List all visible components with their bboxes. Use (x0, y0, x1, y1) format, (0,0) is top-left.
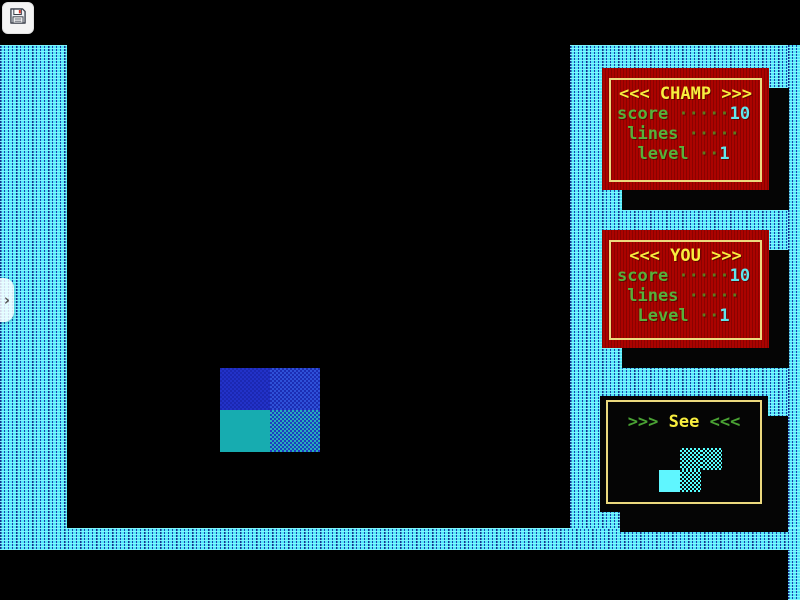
champ-score-label: score (617, 104, 678, 124)
you-level-dots: ·· (699, 306, 719, 326)
you-panel-border: <<< YOU >>> score ·····10 lines ····· Le… (609, 240, 762, 340)
playfield-block (220, 368, 270, 410)
next-piece-block (680, 448, 701, 470)
floppy-disk-icon (8, 6, 28, 30)
next-piece-panel-title: >>> See <<< (608, 412, 760, 432)
you-panel-title: <<< YOU >>> (611, 246, 760, 266)
see-title-right-arrows: <<< (699, 412, 740, 432)
chevron-right-icon: › (4, 293, 10, 308)
you-panel: <<< YOU >>> score ·····10 lines ····· Le… (602, 230, 769, 348)
champ-lines-label: lines (617, 124, 689, 144)
champ-score-row: score ·····10 (611, 104, 760, 124)
next-piece-block (701, 448, 722, 470)
champ-panel-border: <<< CHAMP >>> score ·····10 lines ····· … (609, 78, 762, 182)
you-level-label: Level (617, 306, 699, 326)
champ-panel-title: <<< CHAMP >>> (611, 84, 760, 104)
champ-level-row: level ··1 (611, 144, 760, 164)
champ-panel: <<< CHAMP >>> score ·····10 lines ····· … (602, 68, 769, 190)
screen-right-edge-wall (788, 45, 800, 600)
you-score-row: score ·····10 (611, 266, 760, 286)
sidebar-toggle[interactable]: › (0, 278, 14, 322)
game-screen: <<< CHAMP >>> score ·····10 lines ····· … (0, 0, 800, 600)
champ-level-label: level (617, 144, 699, 164)
you-score-value: 10 (730, 266, 750, 286)
you-score-label: score (617, 266, 678, 286)
champ-lines-row: lines ····· (611, 124, 760, 144)
champ-level-value: 1 (719, 144, 729, 164)
champ-score-dots: ····· (678, 104, 729, 124)
playfield-block (270, 368, 320, 410)
you-level-value: 1 (719, 306, 729, 326)
save-button[interactable] (2, 2, 34, 34)
you-lines-dots: ····· (689, 286, 740, 306)
see-title-word: See (669, 412, 700, 432)
you-lines-label: lines (617, 286, 689, 306)
next-piece-block (659, 470, 680, 492)
champ-level-dots: ·· (699, 144, 719, 164)
playfield-block (270, 410, 320, 452)
champ-score-value: 10 (730, 104, 750, 124)
next-piece-panel: >>> See <<< (600, 396, 768, 512)
you-lines-row: lines ····· (611, 286, 760, 306)
you-score-dots: ····· (678, 266, 729, 286)
you-level-row: Level ··1 (611, 306, 760, 326)
champ-lines-dots: ····· (689, 124, 740, 144)
next-piece-block (680, 470, 701, 492)
playfield-block (220, 410, 270, 452)
see-title-left-arrows: >>> (628, 412, 669, 432)
